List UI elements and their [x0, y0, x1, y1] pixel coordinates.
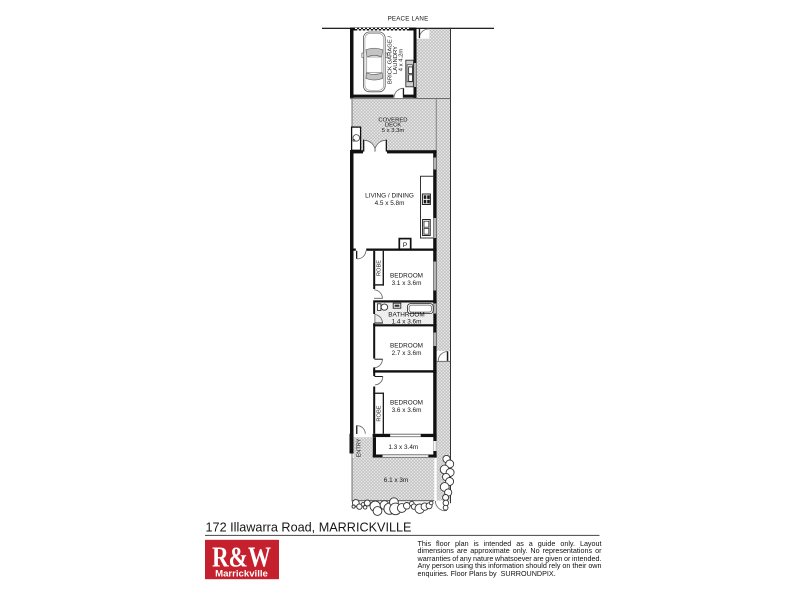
- svg-text:BEDROOM: BEDROOM: [390, 273, 423, 280]
- svg-text:1.3 x 3.4m: 1.3 x 3.4m: [388, 444, 418, 451]
- svg-text:6.1 x 3m: 6.1 x 3m: [384, 477, 409, 484]
- svg-text:3.1 x 3.6m: 3.1 x 3.6m: [392, 280, 422, 287]
- svg-text:ROBE: ROBE: [376, 405, 382, 421]
- svg-text:3.6 x 3.6m: 3.6 x 3.6m: [392, 407, 422, 414]
- svg-text:ENTRY: ENTRY: [357, 438, 363, 457]
- svg-text:BEDROOM: BEDROOM: [390, 343, 423, 350]
- svg-text:BEDROOM: BEDROOM: [390, 400, 423, 407]
- svg-text:BATHROOM: BATHROOM: [388, 311, 424, 318]
- svg-text:P: P: [403, 242, 408, 249]
- svg-text:ROBE: ROBE: [377, 260, 383, 276]
- svg-text:2.7 x 3.6m: 2.7 x 3.6m: [392, 350, 422, 357]
- svg-text:4 x 4.2m: 4 x 4.2m: [399, 49, 405, 72]
- svg-text:Marrickville: Marrickville: [215, 569, 268, 580]
- svg-text:4.5 x 5.8m: 4.5 x 5.8m: [375, 200, 405, 207]
- svg-text:172 Illawarra Road, MARRICKVIL: 172 Illawarra Road, MARRICKVILLE: [206, 520, 412, 535]
- svg-text:PEACE LANE: PEACE LANE: [388, 16, 429, 23]
- svg-text:5 x 3.3m: 5 x 3.3m: [382, 128, 405, 134]
- svg-text:LIVING / DINING: LIVING / DINING: [365, 193, 414, 200]
